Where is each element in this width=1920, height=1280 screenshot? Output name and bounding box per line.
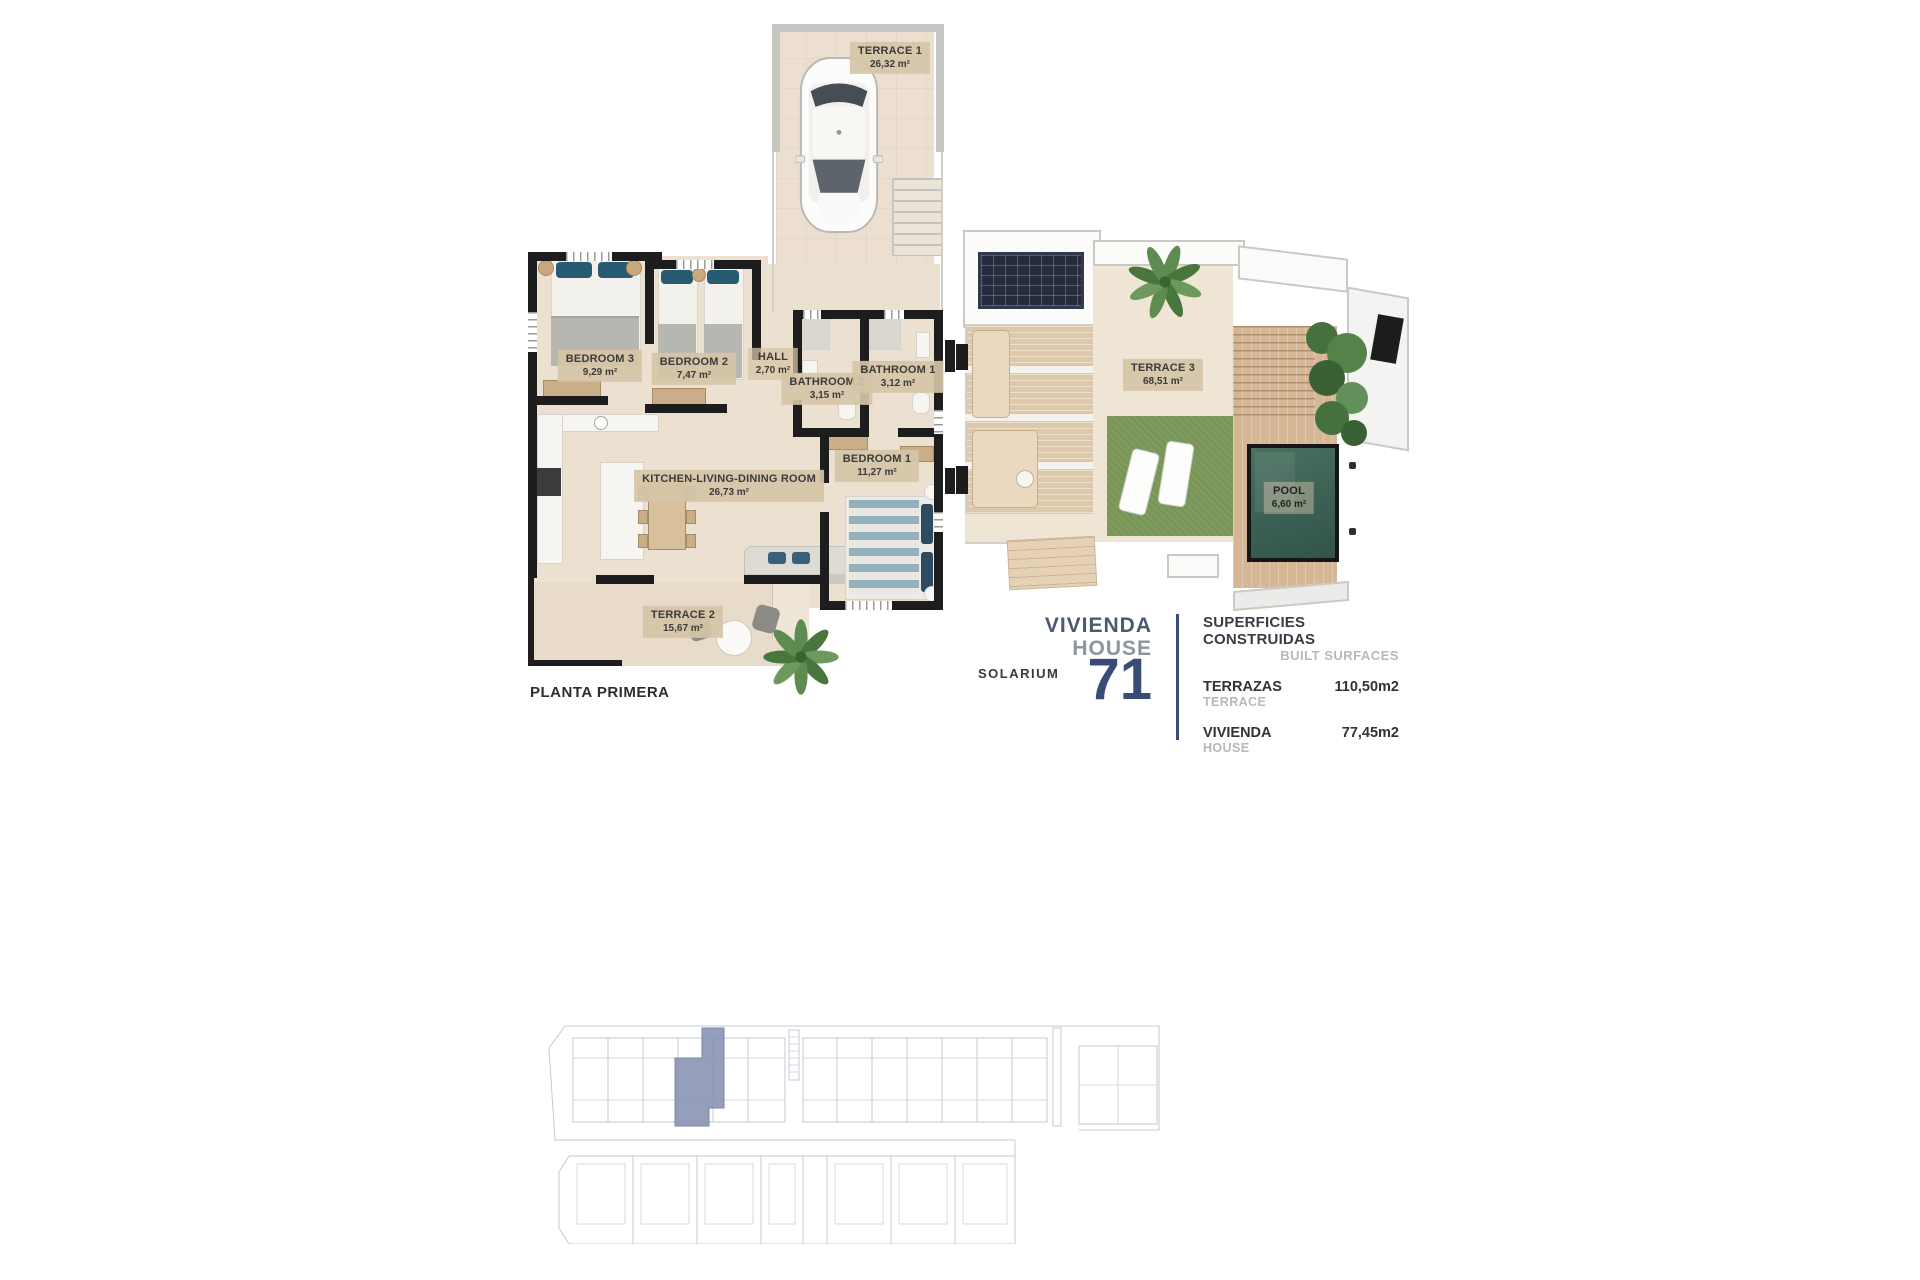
surfaces-row-terraces: TERRAZAS 110,50m2 TERRACE: [1203, 679, 1399, 709]
plan-title-planta-primera: PLANTA PRIMERA: [530, 684, 670, 701]
oven: [537, 468, 561, 496]
wall: [645, 404, 727, 413]
chair: [686, 534, 696, 548]
room-label-kitchen-living-dining: KITCHEN-LIVING-DINING ROOM 26,73 m²: [634, 470, 824, 502]
solar-panel: [978, 252, 1084, 309]
side-table: [538, 260, 554, 276]
pillow: [556, 262, 592, 278]
surfaces-table: SUPERFICIES CONSTRUIDAS BUILT SURFACES T…: [1203, 614, 1399, 755]
surfaces-sublabel-house: HOUSE: [1203, 741, 1399, 755]
surfaces-title-en: BUILT SURFACES: [1203, 648, 1399, 663]
wall: [793, 428, 869, 437]
wall: [528, 578, 534, 666]
wall: [596, 575, 654, 584]
wall: [820, 512, 829, 610]
palm-plant: [760, 616, 842, 698]
site-plan: [545, 1022, 1165, 1244]
first-floor-plan: TERRACE 1 26,32 m²: [0, 0, 1000, 720]
garage-wall-right: [936, 24, 944, 152]
wall: [528, 396, 608, 405]
surfaces-value-vivienda: 77,45m2: [1342, 725, 1399, 741]
side-table: [626, 260, 642, 276]
outdoor-sofa: [972, 330, 1010, 418]
pillow: [661, 270, 693, 284]
room-label-terrace-2: TERRACE 2 15,67 m²: [643, 606, 723, 638]
surfaces-value-terrazas: 110,50m2: [1334, 679, 1399, 695]
exterior-stairs: [892, 178, 942, 256]
pillow: [707, 270, 739, 284]
title-house-number: 71: [1020, 652, 1152, 707]
shower: [869, 318, 901, 350]
cooktop: [594, 416, 608, 430]
window: [934, 512, 943, 532]
outdoor-sofa: [972, 430, 1038, 508]
window: [528, 312, 537, 352]
title-divider: [1176, 614, 1179, 740]
car-top-view: [795, 54, 883, 236]
garage-wall-top: [772, 24, 944, 32]
chair: [686, 510, 696, 524]
wall: [645, 252, 654, 344]
pillow: [921, 504, 933, 544]
roof-step: [1167, 554, 1219, 578]
solarium-plan: POOL 6,60 m² TERRACE 3 68,51 m²: [950, 220, 1430, 640]
window: [934, 410, 943, 434]
wood-walkway: [1007, 536, 1097, 591]
wall: [528, 252, 537, 578]
shower: [800, 318, 830, 350]
planter: [945, 340, 955, 372]
roof-band-top-right: [1238, 245, 1348, 293]
surfaces-title-es: SUPERFICIES CONSTRUIDAS: [1203, 614, 1399, 648]
garage-edge-left: [772, 152, 774, 312]
floor-plan-sheet: { "plan_first_floor": { "label": "PLANTA…: [0, 0, 1920, 1280]
wall: [744, 575, 822, 584]
surfaces-sublabel-terrace: TERRACE: [1203, 695, 1399, 709]
garage-edge-right: [941, 152, 943, 312]
deck-spotlight: [1349, 462, 1356, 469]
window: [676, 260, 714, 269]
title-vivienda: VIVIENDA: [1020, 614, 1152, 638]
toilet: [912, 392, 930, 414]
cushion: [792, 552, 810, 564]
room-label-pool: POOL 6,60 m²: [1264, 482, 1314, 514]
deck-spotlight: [1349, 528, 1356, 535]
surfaces-row-house: VIVIENDA 77,45m2 HOUSE: [1203, 725, 1399, 755]
window: [884, 310, 904, 319]
wall: [752, 260, 761, 360]
outdoor-table: [1016, 470, 1034, 488]
window: [566, 252, 612, 261]
greenery-bushes: [1302, 318, 1372, 448]
room-label-bedroom-1: BEDROOM 1 11,27 m²: [835, 450, 919, 482]
stool: [692, 268, 706, 282]
chair: [638, 510, 648, 524]
surfaces-label-terrazas: TERRAZAS: [1203, 679, 1282, 695]
palm-plant: [1125, 242, 1205, 322]
wall: [528, 660, 622, 666]
garage-wall-left: [772, 24, 780, 152]
cushion: [768, 552, 786, 564]
planter: [956, 344, 968, 370]
room-label-terrace-3: TERRACE 3 68,51 m²: [1123, 359, 1203, 391]
sink: [916, 332, 930, 358]
bed-striped-cover: [849, 500, 919, 594]
room-label-bathroom-1: BATHROOM 1 3,12 m²: [852, 361, 943, 393]
window: [845, 601, 892, 610]
site-plan-highlight-unit: [675, 1028, 724, 1126]
room-label-terrace-1: TERRACE 1 26,32 m²: [850, 42, 930, 74]
window: [803, 310, 821, 319]
planter: [945, 468, 955, 494]
wall: [934, 310, 943, 610]
surfaces-label-vivienda: VIVIENDA: [1203, 725, 1272, 741]
room-label-bedroom-3: BEDROOM 3 9,29 m²: [558, 350, 642, 382]
chair: [638, 534, 648, 548]
planter: [956, 466, 968, 494]
room-label-bedroom-2: BEDROOM 2 7,47 m²: [652, 353, 736, 385]
